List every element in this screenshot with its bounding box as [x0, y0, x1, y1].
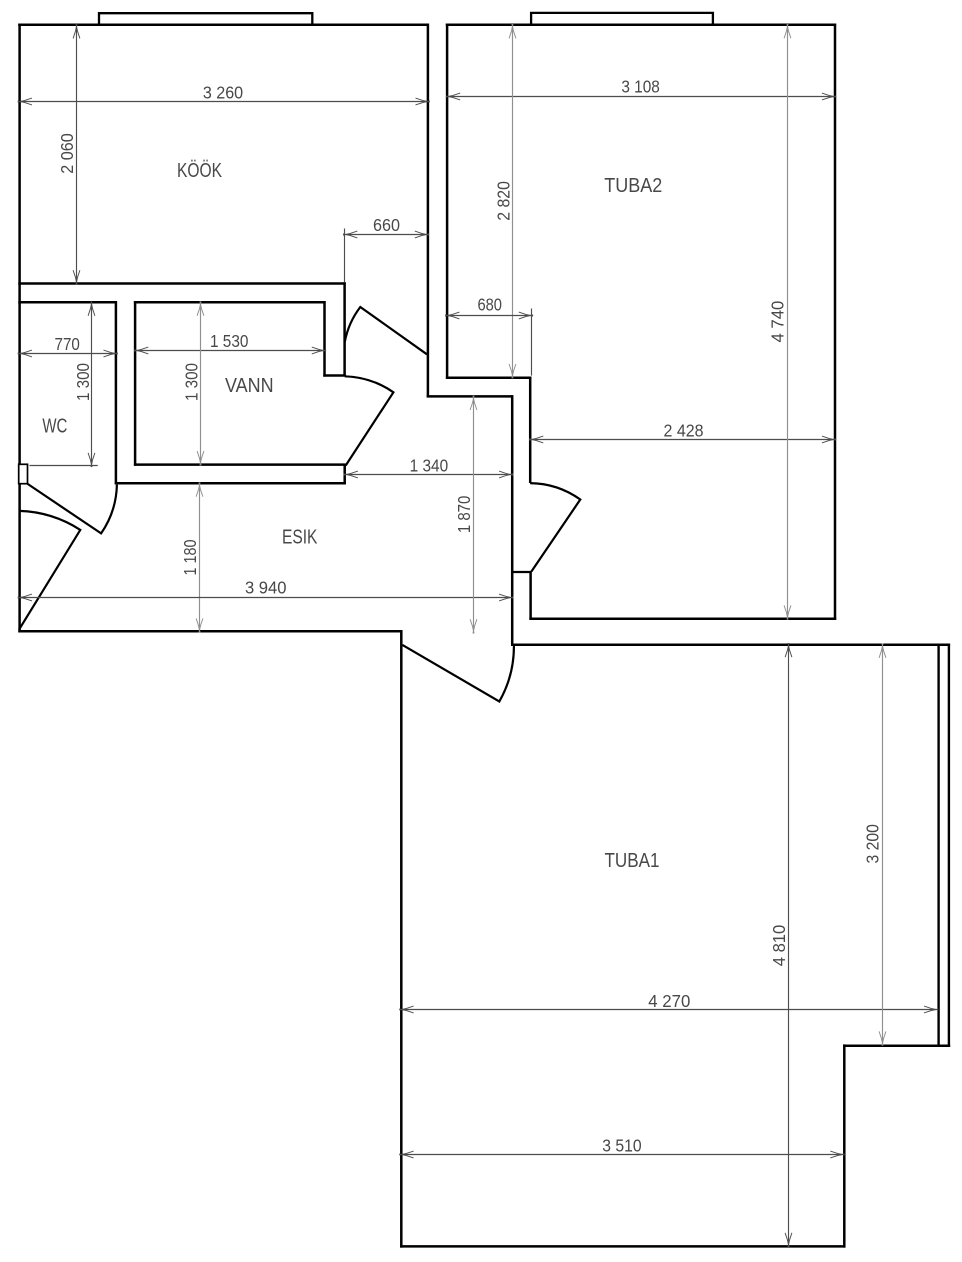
svg-text:3 510: 3 510	[602, 1136, 641, 1156]
svg-text:2 060: 2 060	[57, 133, 77, 173]
svg-text:4 740: 4 740	[767, 301, 787, 343]
svg-text:2 820: 2 820	[493, 181, 513, 221]
svg-text:1 340: 1 340	[410, 455, 449, 475]
svg-text:3 108: 3 108	[621, 77, 660, 97]
svg-text:680: 680	[477, 294, 502, 314]
svg-text:2 428: 2 428	[664, 421, 704, 441]
svg-text:VANN: VANN	[225, 375, 274, 397]
svg-text:ESIK: ESIK	[282, 527, 318, 549]
svg-text:TUBA1: TUBA1	[605, 850, 660, 872]
svg-text:770: 770	[55, 334, 80, 354]
svg-text:3 940: 3 940	[245, 578, 287, 598]
svg-text:3 200: 3 200	[863, 824, 883, 863]
svg-text:1 300: 1 300	[182, 363, 202, 401]
svg-text:1 870: 1 870	[454, 496, 474, 534]
svg-text:1 530: 1 530	[210, 331, 248, 351]
svg-text:3 260: 3 260	[203, 83, 243, 103]
svg-text:WC: WC	[42, 416, 67, 438]
svg-text:4 810: 4 810	[769, 925, 789, 967]
svg-text:1 300: 1 300	[73, 363, 93, 401]
svg-text:KÖÖK: KÖÖK	[177, 160, 223, 182]
svg-text:1 180: 1 180	[180, 539, 200, 575]
svg-text:4 270: 4 270	[648, 991, 690, 1011]
svg-text:660: 660	[373, 215, 400, 235]
svg-text:TUBA2: TUBA2	[604, 175, 662, 197]
